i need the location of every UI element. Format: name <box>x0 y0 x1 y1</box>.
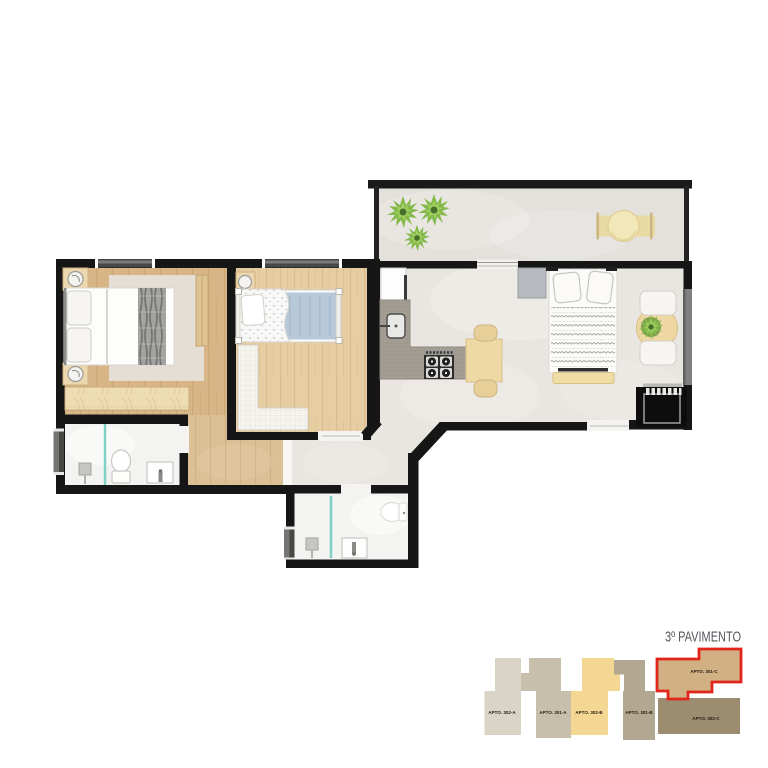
svg-text:APTO. 302-B: APTO. 302-B <box>575 710 603 715</box>
svg-text:3º PAVIMENTO: 3º PAVIMENTO <box>665 630 741 646</box>
svg-text:APTO. 302-A: APTO. 302-A <box>488 710 516 715</box>
svg-text:APTO. 301-B: APTO. 301-B <box>625 710 653 715</box>
svg-text:APTO. 302-C: APTO. 302-C <box>692 716 720 721</box>
svg-text:APTO. 301-A: APTO. 301-A <box>539 710 567 715</box>
svg-text:APTO. 301-C: APTO. 301-C <box>690 669 718 674</box>
